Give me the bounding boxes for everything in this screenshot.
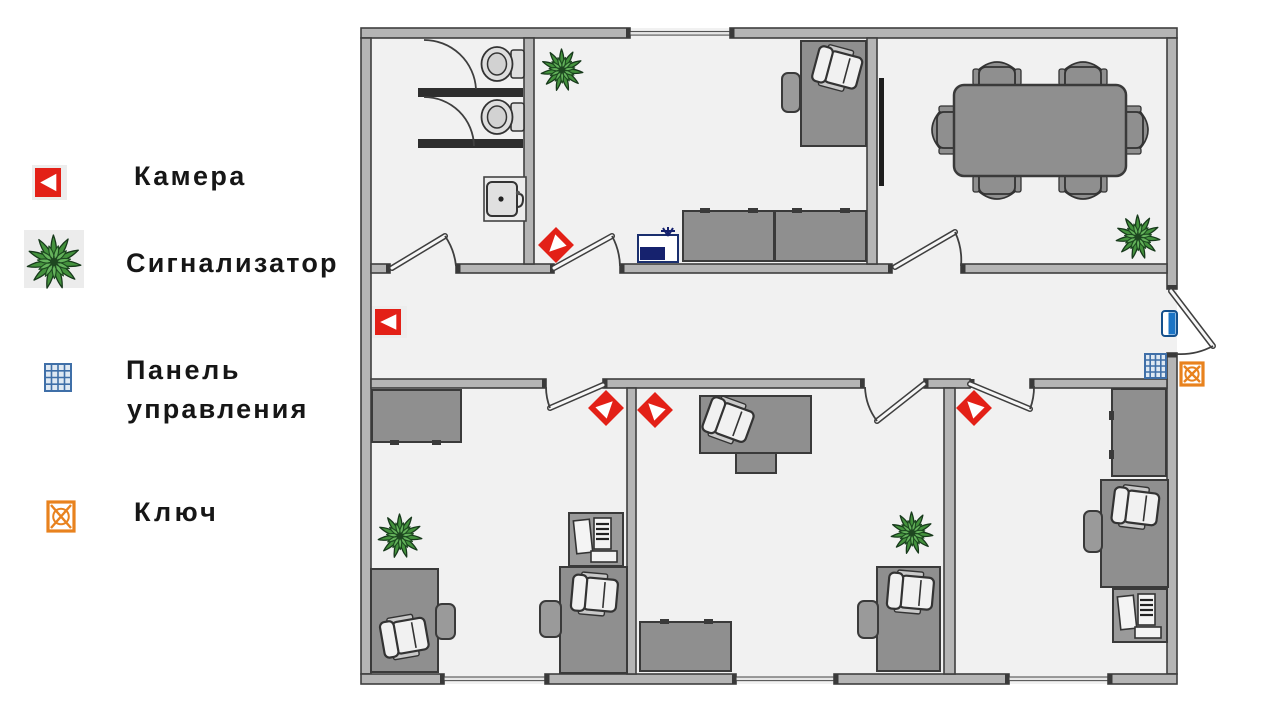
svg-text:управления: управления (127, 394, 309, 424)
svg-text:Сигнализатор: Сигнализатор (126, 248, 339, 278)
svg-text:Панель: Панель (126, 355, 241, 385)
svg-text:Камера: Камера (134, 161, 247, 191)
svg-text:Ключ: Ключ (134, 497, 219, 527)
